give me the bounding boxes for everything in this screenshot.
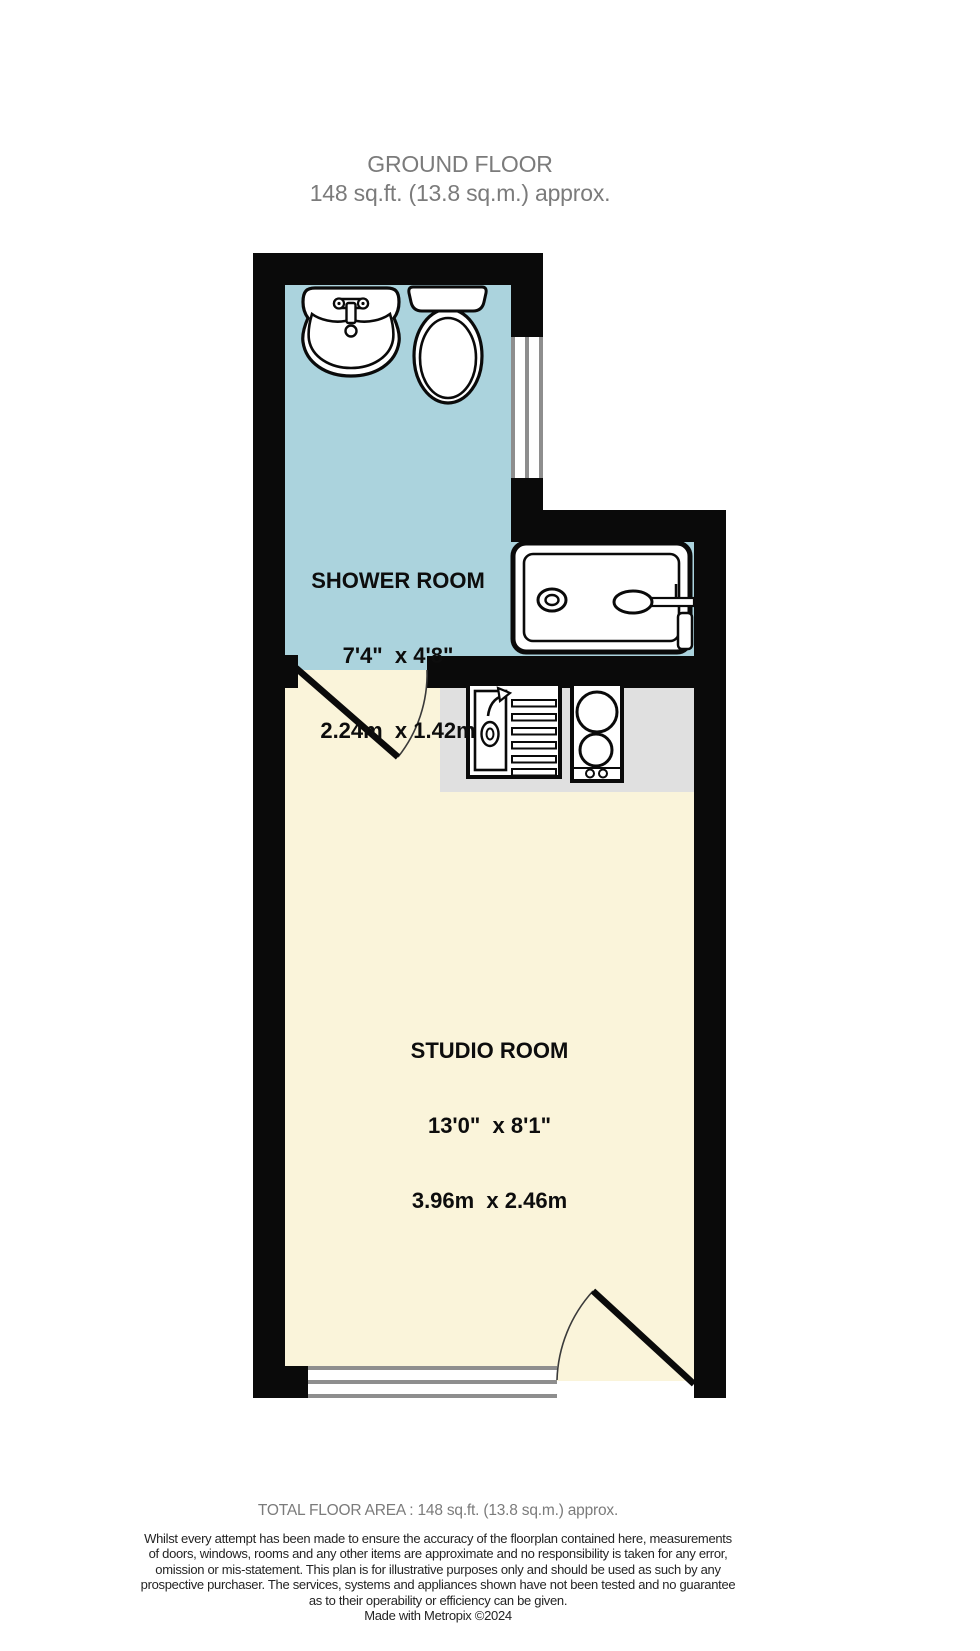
total-floor-area: TOTAL FLOOR AREA : 148 sq.ft. (13.8 sq.m…	[128, 1502, 748, 1520]
room-size-metric: 3.96m x 2.46m	[285, 1188, 694, 1213]
room-size-imperial: 13'0" x 8'1"	[285, 1113, 694, 1138]
entrance-doorway-floor	[557, 1366, 694, 1381]
studio-room-label: STUDIO ROOM 13'0" x 8'1" 3.96m x 2.46m	[285, 988, 694, 1238]
wall-top	[253, 253, 543, 285]
plan-title: GROUND FLOOR 148 sq.ft. (13.8 sq.m.) app…	[60, 150, 860, 208]
window-glass-line	[525, 337, 529, 478]
room-size-imperial: 7'4" x 4'8"	[285, 643, 511, 668]
shower-room-window	[511, 337, 543, 478]
shower-room-label: SHOWER ROOM 7'4" x 4'8" 2.24m x 1.42m	[285, 518, 511, 768]
room-size-metric: 2.24m x 1.42m	[285, 718, 511, 743]
floor-area: 148 sq.ft. (13.8 sq.m.) approx.	[60, 179, 860, 208]
window-glass-line	[308, 1380, 557, 1384]
wall-shower-right-upper	[511, 283, 543, 337]
metropix-credit: Made with Metropix ©2024	[98, 1608, 778, 1623]
wall-shower-right-lower	[511, 478, 543, 542]
wall-left	[253, 253, 285, 1398]
room-name: STUDIO ROOM	[285, 1038, 694, 1063]
wall-bottom-left	[253, 1366, 308, 1398]
studio-room-window	[308, 1366, 557, 1398]
shower-alcove-floor	[511, 542, 694, 658]
room-name: SHOWER ROOM	[285, 568, 511, 593]
floor-name: GROUND FLOOR	[60, 150, 860, 179]
wall-right	[694, 510, 726, 1398]
disclaimer-text: Whilst every attempt has been made to en…	[98, 1531, 778, 1608]
